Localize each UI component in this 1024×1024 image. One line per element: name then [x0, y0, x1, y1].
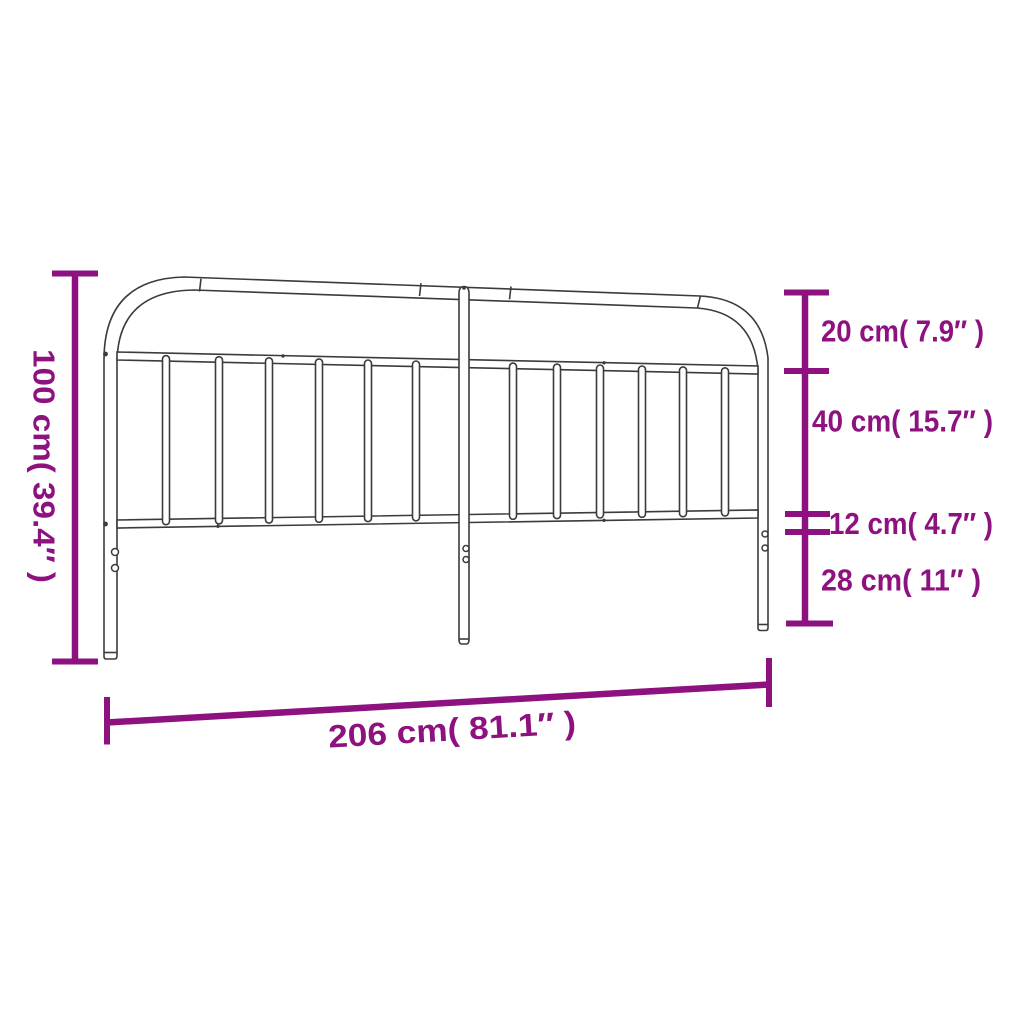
leg-caps	[105, 625, 768, 653]
spindle	[216, 357, 223, 524]
height-dimension-label: 100 cm( 39.4″ )	[27, 349, 62, 583]
width-dimension-label: 206 cm( 81.1″ )	[327, 704, 577, 754]
headboard-drawing	[103, 277, 768, 659]
top-gap-dimension-label: 20 cm( 7.9″ )	[821, 314, 984, 349]
spindle	[163, 356, 170, 525]
height-dimension: 100 cm( 39.4″ )	[27, 271, 99, 662]
screw-holes	[112, 531, 769, 572]
leg-dimension-label: 28 cm( 11″ )	[821, 563, 981, 598]
spindle	[510, 363, 517, 519]
spindle	[266, 358, 273, 523]
spindle	[554, 364, 561, 518]
spindle	[413, 361, 420, 521]
dimension-diagram: 100 cm( 39.4″ ) 20 cm( 7.9″ ) 40 cm( 15.…	[0, 0, 1024, 1024]
center-post	[459, 287, 469, 645]
upper-rail	[117, 352, 758, 374]
grill-dimension-label: 40 cm( 15.7″ )	[812, 404, 993, 439]
spindle	[365, 360, 372, 522]
spindle	[722, 368, 729, 516]
diagram-canvas: 100 cm( 39.4″ ) 20 cm( 7.9″ ) 40 cm( 15.…	[0, 0, 1024, 1024]
section-dimensions: 20 cm( 7.9″ ) 40 cm( 15.7″ ) 12 cm( 4.7″…	[784, 292, 993, 624]
headboard-frame	[104, 277, 768, 659]
lower-rail	[117, 510, 758, 528]
spindle	[639, 366, 646, 517]
spindle	[680, 367, 687, 517]
width-dimension: 206 cm( 81.1″ )	[107, 658, 769, 755]
rail-offset-dimension-label: 12 cm( 4.7″ )	[829, 506, 993, 541]
spindle	[316, 359, 323, 522]
spindles	[163, 356, 729, 525]
spindle	[597, 365, 604, 518]
weld-dots	[103, 286, 606, 528]
